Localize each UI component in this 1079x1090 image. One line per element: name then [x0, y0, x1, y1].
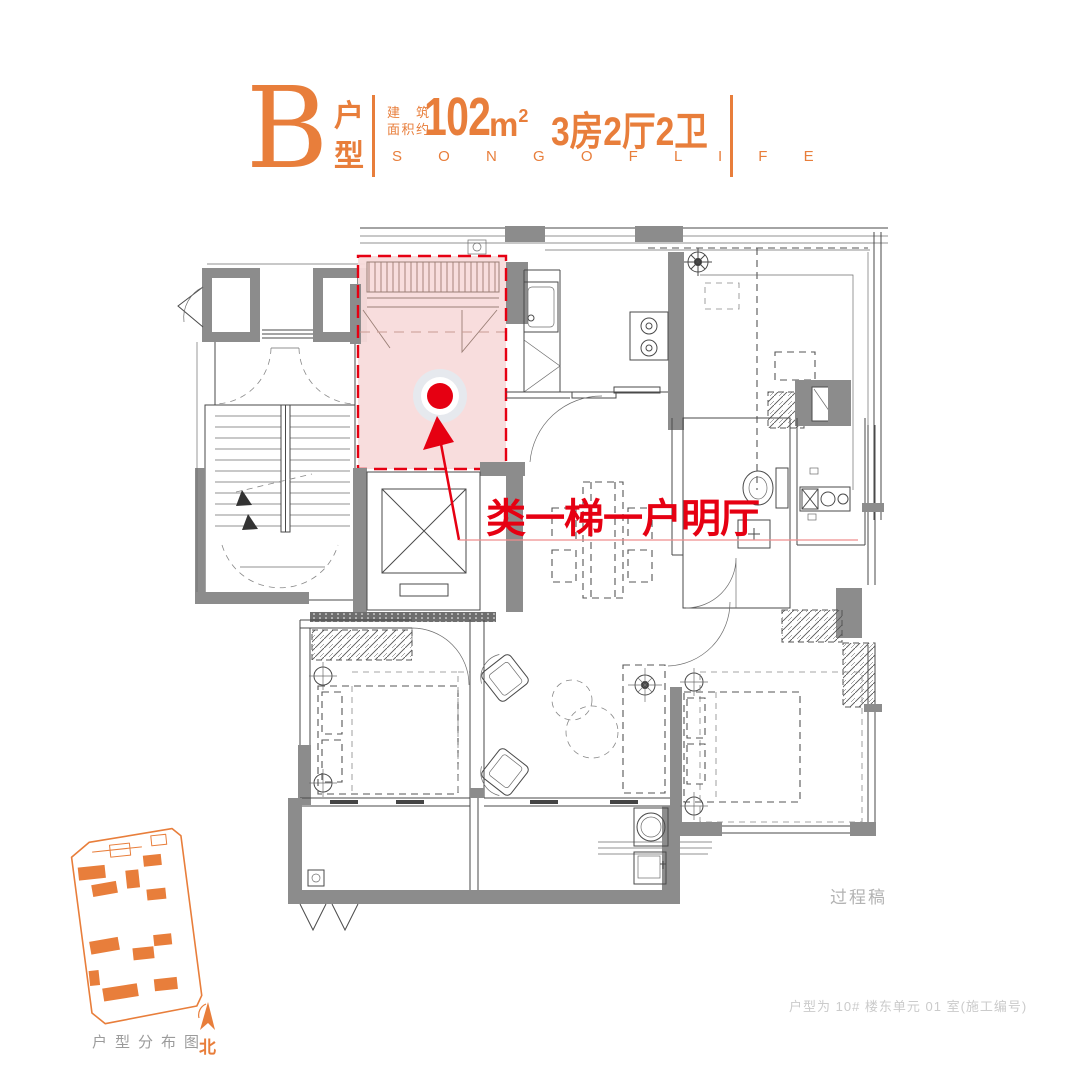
- minimap-caption: 户型分布图: [92, 1031, 207, 1052]
- site-minimap: [70, 827, 204, 1025]
- master-bedroom: [598, 602, 882, 854]
- entry-shafts: [178, 264, 365, 338]
- living-room: [473, 648, 682, 822]
- bedroom-left: [298, 620, 484, 806]
- page: B 户 型 建 筑 面积约 102 m2 3房2厅2卫 S O N G O F …: [0, 0, 1079, 1090]
- north-label: 北: [199, 1033, 216, 1058]
- draft-watermark: 过程稿: [830, 883, 887, 908]
- floor-plan: [0, 0, 1079, 1090]
- annotation-marker: [413, 369, 467, 423]
- balcony: [288, 798, 680, 930]
- annotation-label: 类一梯一户明厅: [486, 486, 759, 544]
- stairwell: [195, 342, 355, 604]
- north-arrow-icon: [199, 1002, 215, 1030]
- unit-note: 户型为 10# 楼东单元 01 室(施工编号): [789, 996, 1027, 1015]
